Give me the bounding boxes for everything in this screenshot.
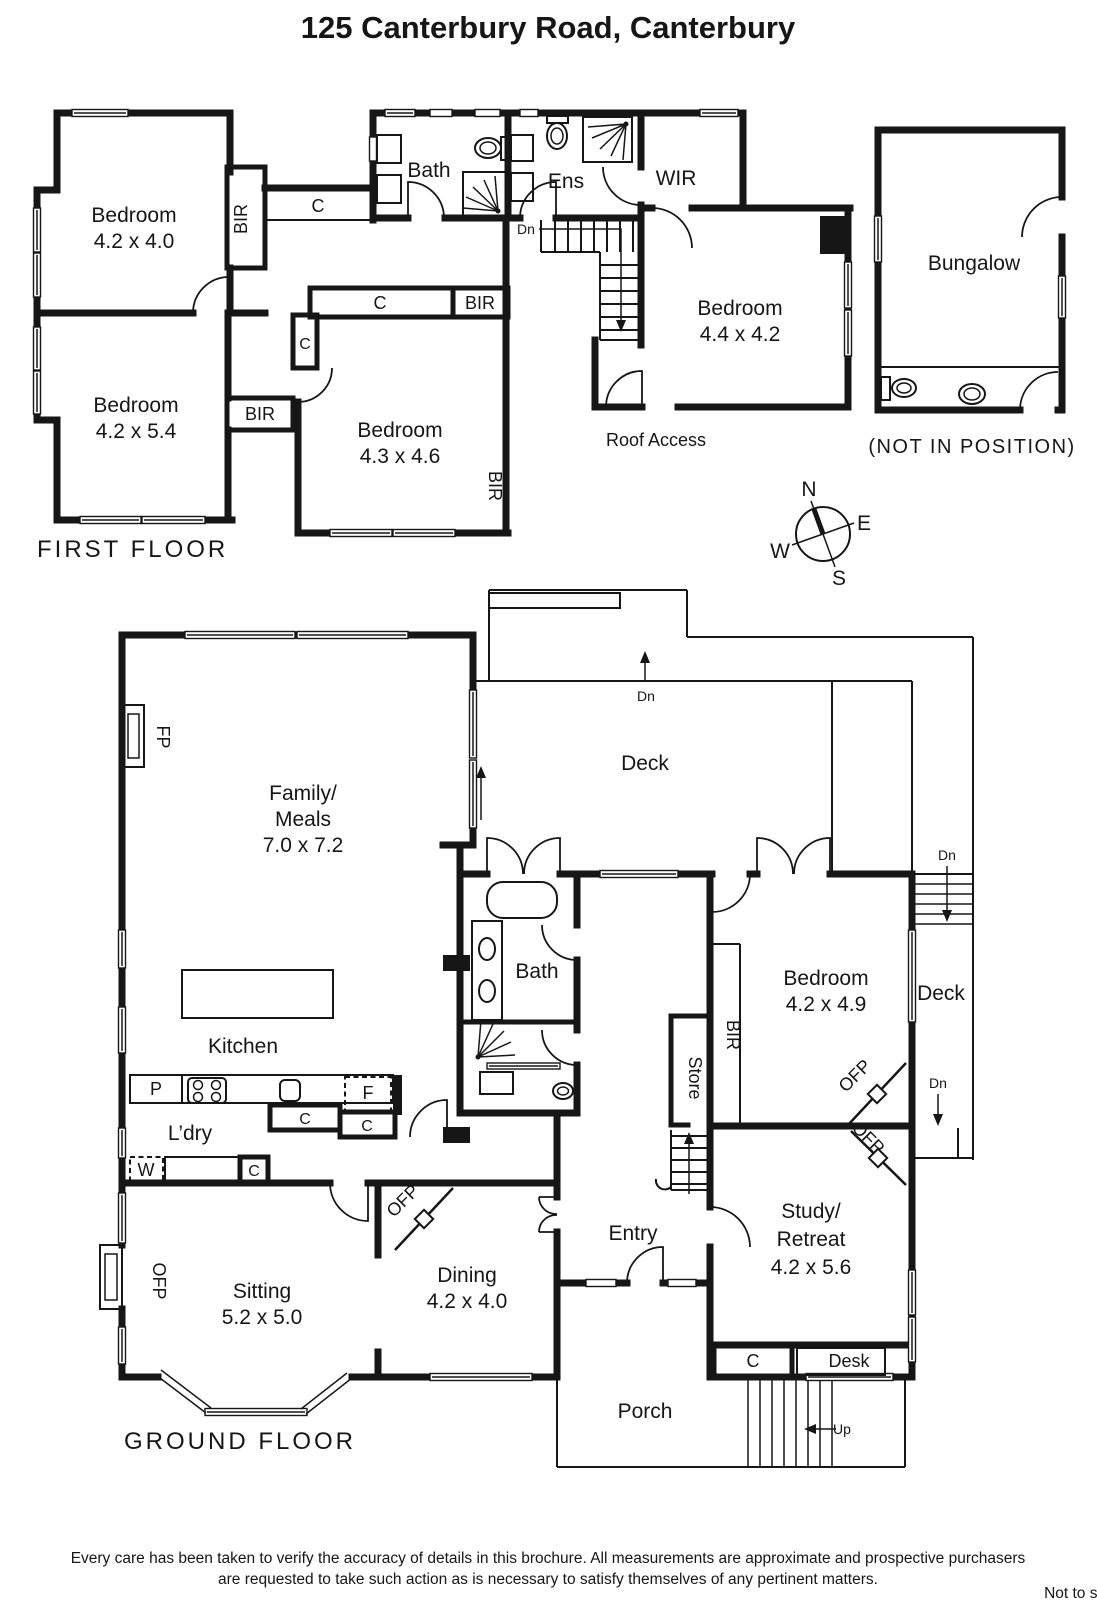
cupboard-label: C xyxy=(374,293,387,313)
washer-label: W xyxy=(138,1160,155,1180)
room-label: Entry xyxy=(608,1222,658,1245)
up-label: Up xyxy=(833,1421,851,1437)
basin-icon xyxy=(480,1072,513,1094)
deck-stairs-icon xyxy=(912,884,973,924)
first-floor-plan: Bedroom 4.2 x 4.0 Bedroom 4.2 x 5.4 Bedr… xyxy=(34,110,1076,591)
room-dims: 5.2 x 5.0 xyxy=(222,1306,303,1329)
down-label: Dn xyxy=(929,1075,947,1091)
bir-label: BIR xyxy=(723,1020,743,1050)
room-label: Bath xyxy=(407,159,450,182)
desk-label: Desk xyxy=(828,1351,870,1371)
room-dims: 4.2 x 4.0 xyxy=(94,230,175,253)
stairs-icon xyxy=(539,220,641,340)
down-label: Dn xyxy=(938,847,956,863)
deck-step xyxy=(489,593,620,608)
porch-outline xyxy=(557,1377,905,1467)
bay-window xyxy=(156,1370,352,1414)
scale-note: Not to scale xyxy=(1044,1585,1097,1600)
compass-icon: N E S W xyxy=(770,478,871,590)
ofp-label: OFP xyxy=(149,1262,169,1299)
toilet-icon xyxy=(547,116,568,149)
room-label: L’dry xyxy=(168,1122,213,1145)
room-label: Study/ xyxy=(781,1200,841,1223)
room-dims: 4.2 x 5.4 xyxy=(96,420,177,443)
room-dims: 4.2 x 4.0 xyxy=(427,1290,508,1313)
deck-lower-step xyxy=(913,1128,973,1158)
ofp-label: OFP xyxy=(383,1181,423,1221)
bir-label: BIR xyxy=(485,471,505,501)
vanity-icon xyxy=(377,135,401,163)
page-title: 125 Canterbury Road, Canterbury xyxy=(301,10,796,45)
ground-floor-plan: Family/ Meals 7.0 x 7.2 Kitchen L’dry Si… xyxy=(100,590,973,1467)
bungalow-note: (NOT IN POSITION) xyxy=(868,436,1075,458)
cupboard-label: C xyxy=(299,1111,311,1128)
compass-e: E xyxy=(857,512,871,535)
cupboard-label: C xyxy=(312,196,325,216)
fridge-label: F xyxy=(363,1083,374,1103)
bathtub-icon xyxy=(487,882,557,918)
cupboard-label: C xyxy=(747,1351,760,1371)
room-label: Bedroom xyxy=(697,297,782,320)
island-bench xyxy=(182,970,333,1018)
bir-label: BIR xyxy=(245,404,275,424)
floor-title: FIRST FLOOR xyxy=(37,536,228,563)
room-label: Bungalow xyxy=(928,252,1021,275)
roof-access-label: Roof Access xyxy=(606,430,706,450)
room-label: Retreat xyxy=(777,1228,846,1251)
room-label: Bedroom xyxy=(357,419,442,442)
room-label: Kitchen xyxy=(208,1035,278,1058)
vanity-icon xyxy=(377,175,401,203)
room-label: Bedroom xyxy=(783,967,868,990)
room-label: Bath xyxy=(515,960,558,983)
porch-stairs-icon xyxy=(748,1380,832,1467)
up-arrow-icon xyxy=(684,1132,694,1144)
cooktop-icon xyxy=(188,1078,226,1103)
shower-icon xyxy=(583,117,632,162)
shower-icon xyxy=(476,1020,516,1060)
bir-label: BIR xyxy=(465,293,495,313)
entry-stairs-icon xyxy=(656,1130,707,1194)
room-label: Bedroom xyxy=(91,204,176,227)
toilet-icon xyxy=(553,1083,573,1099)
room-dims: 4.4 x 4.2 xyxy=(700,323,781,346)
ofp-label: OFP xyxy=(835,1056,875,1096)
flow-arrows xyxy=(476,651,952,1434)
vanity-icon xyxy=(511,135,533,161)
kitchen-fixtures xyxy=(130,970,395,1183)
cupboard-label: C xyxy=(248,1163,260,1180)
cupboard-label: C xyxy=(361,1118,373,1135)
room-label: Bedroom xyxy=(93,394,178,417)
sink-icon xyxy=(280,1080,300,1101)
bungalow: Bungalow (NOT IN POSITION) xyxy=(868,130,1075,458)
fp-label: FP xyxy=(153,725,173,748)
room-dims: 4.2 x 5.6 xyxy=(771,1256,852,1279)
shower-icon xyxy=(463,172,508,218)
room-label: Sitting xyxy=(233,1280,291,1303)
compass-n: N xyxy=(801,478,816,501)
compass-s: S xyxy=(832,567,846,590)
down-label: Dn xyxy=(517,221,535,237)
floor-title: GROUND FLOOR xyxy=(124,1428,356,1455)
toilet-icon xyxy=(475,137,509,160)
room-label: Dining xyxy=(437,1264,497,1287)
vanity-icon xyxy=(472,921,502,1020)
room-label: Family/ xyxy=(269,782,337,805)
room-label: Porch xyxy=(618,1400,673,1423)
room-label: WIR xyxy=(656,167,697,190)
basin-icon xyxy=(959,384,985,404)
disclaimer-line2: are requested to take such action as is … xyxy=(218,1571,878,1588)
room-label: Meals xyxy=(275,808,331,831)
laundry-bench xyxy=(165,1157,240,1183)
room-label: Deck xyxy=(917,982,965,1005)
ground-floor-labels: Family/ Meals 7.0 x 7.2 Kitchen L’dry Si… xyxy=(124,688,965,1455)
room-dims: 4.3 x 4.6 xyxy=(360,445,441,468)
room-label: Ens xyxy=(548,170,584,193)
cupboard-label: C xyxy=(299,336,311,353)
disclaimer-line1: Every care has been taken to verify the … xyxy=(71,1550,1026,1567)
chimney xyxy=(820,216,848,254)
toilet-icon xyxy=(881,377,916,400)
down-label: Dn xyxy=(637,688,655,704)
room-label: Deck xyxy=(621,752,669,775)
compass-w: W xyxy=(770,540,790,563)
bench xyxy=(130,1075,393,1103)
room-dims: 7.0 x 7.2 xyxy=(263,834,344,857)
pantry-label: P xyxy=(150,1079,162,1099)
bir-label: BIR xyxy=(231,204,251,234)
vanity-icon xyxy=(511,173,533,201)
room-dims: 4.2 x 4.9 xyxy=(786,993,867,1016)
footer: Every care has been taken to verify the … xyxy=(71,1550,1097,1600)
store-label: Store xyxy=(685,1056,705,1099)
floorplan-brochure: 125 Canterbury Road, Canterbury xyxy=(0,0,1097,1600)
